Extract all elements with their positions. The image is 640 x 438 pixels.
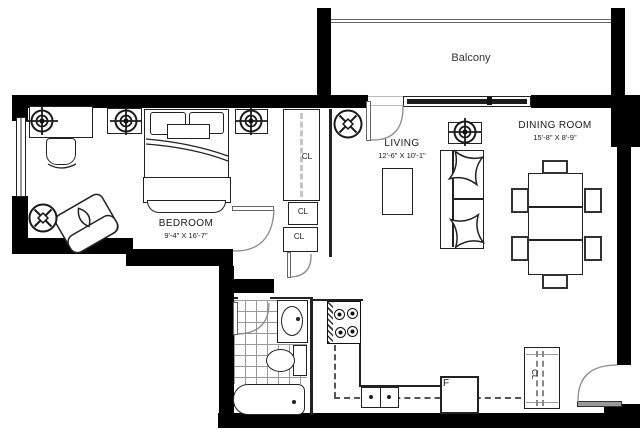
stove-burner [347,326,358,337]
closet-label: CL [292,152,322,162]
south-wall [218,413,640,428]
desk [29,106,93,138]
table-leaf-line [529,239,582,241]
east-wall [617,147,631,365]
living-window-glass [407,99,527,104]
bathroom-west-wall [219,266,234,416]
balcony-right-wall [611,8,625,96]
entrance-door-arc [578,365,617,402]
sofa-cushion-line [453,198,483,200]
dining-chair [511,188,529,213]
stove-burner [347,308,358,319]
living-label: LIVING 12'-6" X 10'-1" [342,137,462,161]
dining-chair [511,236,529,261]
bedroom-label: BEDROOM 9'-4" X 16'-7" [126,217,246,241]
floor-plan: F CL [0,0,640,438]
exhaust-fan-icon [30,205,57,232]
sink-drain [387,395,391,399]
light-fixture-box [235,109,268,134]
bedroom-window [16,117,26,197]
bathroom-sink [281,306,303,336]
bathtub-faucet [292,400,296,404]
dining-chair [584,236,602,261]
bedroom-dims: 9'-4" X 16'-7" [126,231,246,241]
bedroom-south-wall-b [126,249,233,266]
bed-headrest [167,124,210,139]
living-dims: 12'-6" X 10'-1" [342,151,462,161]
stove-side-hatch [328,302,333,343]
closet-label: CL [284,232,314,242]
dining-chair [584,188,602,213]
toilet-bowl [266,349,295,372]
bathroom-north-wall [270,297,313,299]
exhaust-fan-icon [335,111,362,138]
window-mullion [487,97,492,105]
balcony-door [366,101,371,141]
sink-faucet [296,317,300,321]
closet-door-arc [291,254,311,277]
bed-footboard [147,200,226,213]
stove [327,301,361,344]
stove-burner [335,327,346,338]
closet-label: CL [288,207,318,217]
sink-drain [369,395,373,399]
dining-chair [542,160,568,174]
bathroom-north-wall [234,297,238,299]
hallway-wall-stub [230,279,274,293]
balcony-label: Balcony [411,51,531,65]
living-west-wall [329,109,332,257]
northeast-column [611,95,640,147]
table-leaf-line [529,206,582,208]
balcony-door-arc [371,105,403,140]
bedroom-south-wall-a [12,238,133,254]
bathroom-floor-tiles [234,300,277,344]
dining-chair [542,274,568,289]
fridge-label: F [443,377,455,390]
toilet-tank [293,345,307,376]
bedroom-door [232,206,274,211]
bedroom-name: BEDROOM [126,217,246,230]
balcony-railing [331,19,611,23]
entry-closet-door-dashed [542,351,544,406]
hall-closet-door [287,252,291,278]
bathroom-east-wall [310,298,313,415]
entry-closet-label: CL [529,364,539,384]
balcony-left-wall [317,8,331,96]
entrance-door [577,401,622,407]
coffee-table [382,168,413,215]
bathroom-door [233,302,238,335]
dining-table [528,173,583,275]
upper-cabinet-dashed [334,345,336,398]
stove-burner [334,309,345,320]
balcony-door-threshold [368,96,403,106]
living-name: LIVING [342,137,462,150]
counter-edge [359,343,361,387]
desk-chair [46,138,76,165]
light-fixture-box [107,108,142,134]
dining-label: DINING ROOM 15'-8" X 8'-9" [495,119,615,143]
dining-name: DINING ROOM [495,119,615,132]
dining-dims: 15'-8" X 8'-9" [495,133,615,143]
